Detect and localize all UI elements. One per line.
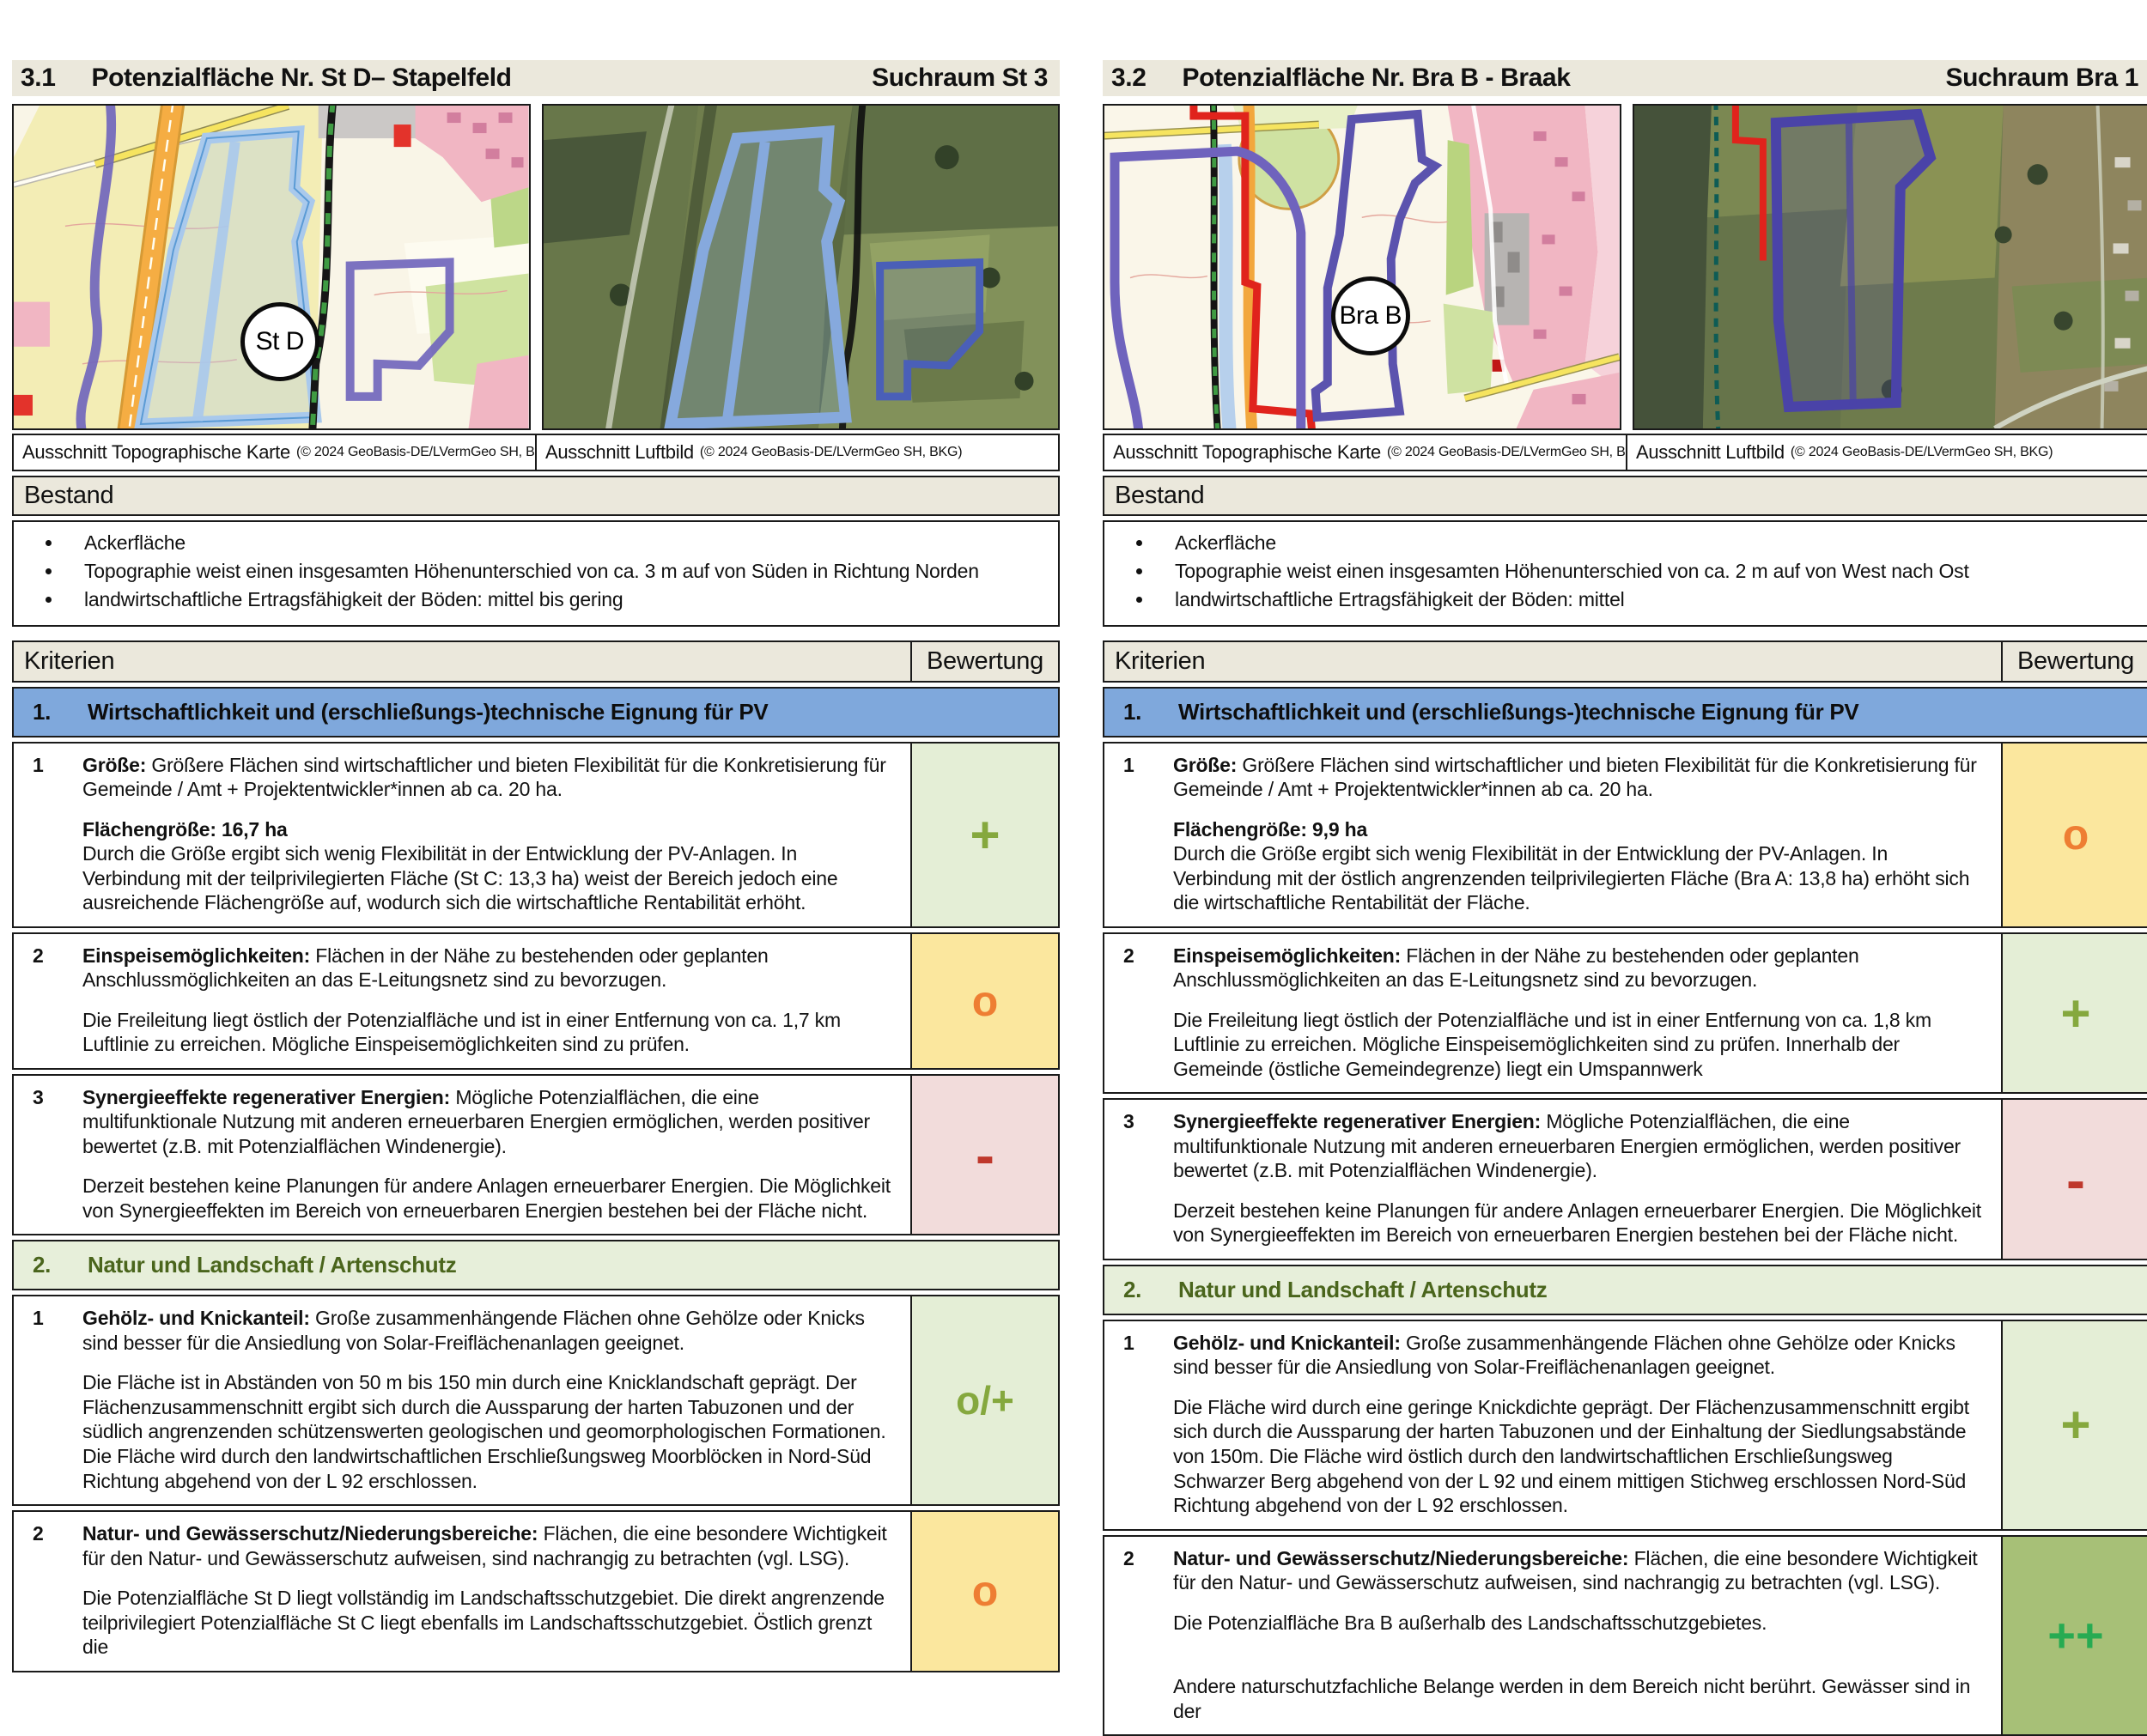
rating-cell: o/+: [910, 1296, 1058, 1504]
criteria-text: 2 Einspeisemöglichkeiten: Flächen in der…: [14, 934, 910, 1068]
section-header-natur: 2. Natur und Landschaft / Artenschutz: [12, 1240, 1060, 1290]
criteria-row-synergieeffekte: 3 Synergieeffekte regenerativer Energien…: [12, 1074, 1060, 1236]
area-label: St D: [256, 327, 304, 356]
criteria-row-naturschutz: 2 Natur- und Gewässerschutz/Niederungsbe…: [12, 1510, 1060, 1672]
panel-bra-b: 3.2 Potenzialfläche Nr. Bra B - Braak Su…: [1103, 60, 2147, 1736]
rating-cell: +: [2001, 1321, 2147, 1529]
section-number: 3.1: [21, 64, 56, 93]
criteria-text: 1 Gehölz- und Knickanteil: Große zusamme…: [14, 1296, 910, 1504]
list-item: Topographie weist einen insgesamten Höhe…: [64, 559, 1058, 585]
aerial-photo-graphic: [544, 106, 1059, 428]
rating-cell: o: [2001, 744, 2147, 926]
rating-cell: -: [910, 1076, 1058, 1235]
panel-title: Potenzialfläche Nr. St D– Stapelfeld: [92, 64, 512, 93]
list-item: landwirtschaftliche Ertragsfähigkeit der…: [1154, 587, 2147, 613]
topo-map-bra-b: Bra B: [1103, 104, 1621, 430]
section-header-wirtschaftlichkeit: 1. Wirtschaftlichkeit und (erschließungs…: [12, 687, 1060, 737]
aerial-caption: Ausschnitt Luftbild (© 2024 GeoBasis-DE/…: [1626, 435, 2147, 470]
criteria-row-synergieeffekte: 3 Synergieeffekte regenerativer Energien…: [1103, 1098, 2147, 1260]
panel-header-st-d: 3.1 Potenzialfläche Nr. St D– Stapelfeld…: [12, 60, 1060, 96]
rating-cell: ++: [2001, 1537, 2147, 1735]
bestand-header: Bestand: [1103, 476, 2147, 516]
rating-cell: -: [2001, 1100, 2147, 1259]
rating-cell: o: [910, 934, 1058, 1068]
criteria-row-einspeisemoeglichkeiten: 2 Einspeisemöglichkeiten: Flächen in der…: [1103, 932, 2147, 1095]
topo-caption: Ausschnitt Topographische Karte (© 2024 …: [1104, 435, 1626, 470]
panel-title-group: 3.2 Potenzialfläche Nr. Bra B - Braak: [1111, 64, 1570, 93]
rating-cell: +: [910, 744, 1058, 926]
criteria-row-groesse: 1 Größe: Größere Flächen sind wirtschaft…: [12, 742, 1060, 928]
document-page: 3.1 Potenzialfläche Nr. St D– Stapelfeld…: [0, 0, 2147, 1736]
rating-cell: o: [910, 1512, 1058, 1671]
maps-row: Bra B: [1103, 104, 2147, 430]
kriterien-header-cell: Kriterien: [14, 642, 910, 681]
section-number: 3.2: [1111, 64, 1146, 93]
area-label-badge: St D: [240, 302, 319, 381]
list-item: landwirtschaftliche Ertragsfähigkeit der…: [64, 587, 1058, 613]
criteria-row-gehoelz: 1 Gehölz- und Knickanteil: Große zusamme…: [12, 1295, 1060, 1506]
bestand-header: Bestand: [12, 476, 1060, 516]
suchraum-label: Suchraum Bra 1: [1946, 64, 2138, 93]
criteria-row-gehoelz: 1 Gehölz- und Knickanteil: Große zusamme…: [1103, 1320, 2147, 1531]
criteria-text: 1 Gehölz- und Knickanteil: Große zusamme…: [1104, 1321, 2001, 1529]
criteria-row-groesse: 1 Größe: Größere Flächen sind wirtschaft…: [1103, 742, 2147, 928]
criteria-row-einspeisemoeglichkeiten: 2 Einspeisemöglichkeiten: Flächen in der…: [12, 932, 1060, 1070]
panel-title-group: 3.1 Potenzialfläche Nr. St D– Stapelfeld: [21, 64, 512, 93]
list-item: Ackerfläche: [64, 531, 1058, 556]
maps-row: St D: [12, 104, 1060, 430]
area-label: Bra B: [1340, 301, 1402, 331]
topo-caption: Ausschnitt Topographische Karte (© 2024 …: [14, 435, 535, 470]
rating-cell: +: [2001, 934, 2147, 1093]
panel-st-d: 3.1 Potenzialfläche Nr. St D– Stapelfeld…: [12, 60, 1060, 1736]
section-header-wirtschaftlichkeit: 1. Wirtschaftlichkeit und (erschließungs…: [1103, 687, 2147, 737]
area-label-badge: Bra B: [1331, 276, 1410, 355]
kriterien-header-cell: Kriterien: [1104, 642, 2001, 681]
topo-map-st-d: St D: [12, 104, 531, 430]
criteria-text: 3 Synergieeffekte regenerativer Energien…: [1104, 1100, 2001, 1259]
caption-row: Ausschnitt Topographische Karte (© 2024 …: [12, 434, 1060, 471]
list-item: Topographie weist einen insgesamten Höhe…: [1154, 559, 2147, 585]
suchraum-label: Suchraum St 3: [872, 64, 1048, 93]
bewertung-header-cell: Bewertung: [910, 642, 1058, 681]
criteria-text: 1 Größe: Größere Flächen sind wirtschaft…: [1104, 744, 2001, 926]
aerial-photo-bra-b: [1633, 104, 2147, 430]
criteria-text: 2 Natur- und Gewässerschutz/Niederungsbe…: [1104, 1537, 2001, 1735]
bestand-list: Ackerfläche Topographie weist einen insg…: [12, 520, 1060, 627]
list-item: Ackerfläche: [1154, 531, 2147, 556]
criteria-text: 2 Natur- und Gewässerschutz/Niederungsbe…: [14, 1512, 910, 1671]
aerial-photo-st-d: [542, 104, 1061, 430]
panel-title: Potenzialfläche Nr. Bra B - Braak: [1183, 64, 1571, 93]
criteria-text: 2 Einspeisemöglichkeiten: Flächen in der…: [1104, 934, 2001, 1093]
caption-row: Ausschnitt Topographische Karte (© 2024 …: [1103, 434, 2147, 471]
criteria-row-naturschutz: 2 Natur- und Gewässerschutz/Niederungsbe…: [1103, 1535, 2147, 1736]
kriterien-header-row: Kriterien Bewertung: [12, 640, 1060, 683]
bewertung-header-cell: Bewertung: [2001, 642, 2147, 681]
panel-header-bra-b: 3.2 Potenzialfläche Nr. Bra B - Braak Su…: [1103, 60, 2147, 96]
kriterien-header-row: Kriterien Bewertung: [1103, 640, 2147, 683]
criteria-text: 1 Größe: Größere Flächen sind wirtschaft…: [14, 744, 910, 926]
section-header-natur: 2. Natur und Landschaft / Artenschutz: [1103, 1265, 2147, 1315]
criteria-text: 3 Synergieeffekte regenerativer Energien…: [14, 1076, 910, 1235]
topo-map-graphic: [1104, 106, 1620, 428]
aerial-photo-graphic: [1634, 106, 2147, 428]
aerial-caption: Ausschnitt Luftbild (© 2024 GeoBasis-DE/…: [535, 435, 1058, 470]
bestand-list: Ackerfläche Topographie weist einen insg…: [1103, 520, 2147, 627]
